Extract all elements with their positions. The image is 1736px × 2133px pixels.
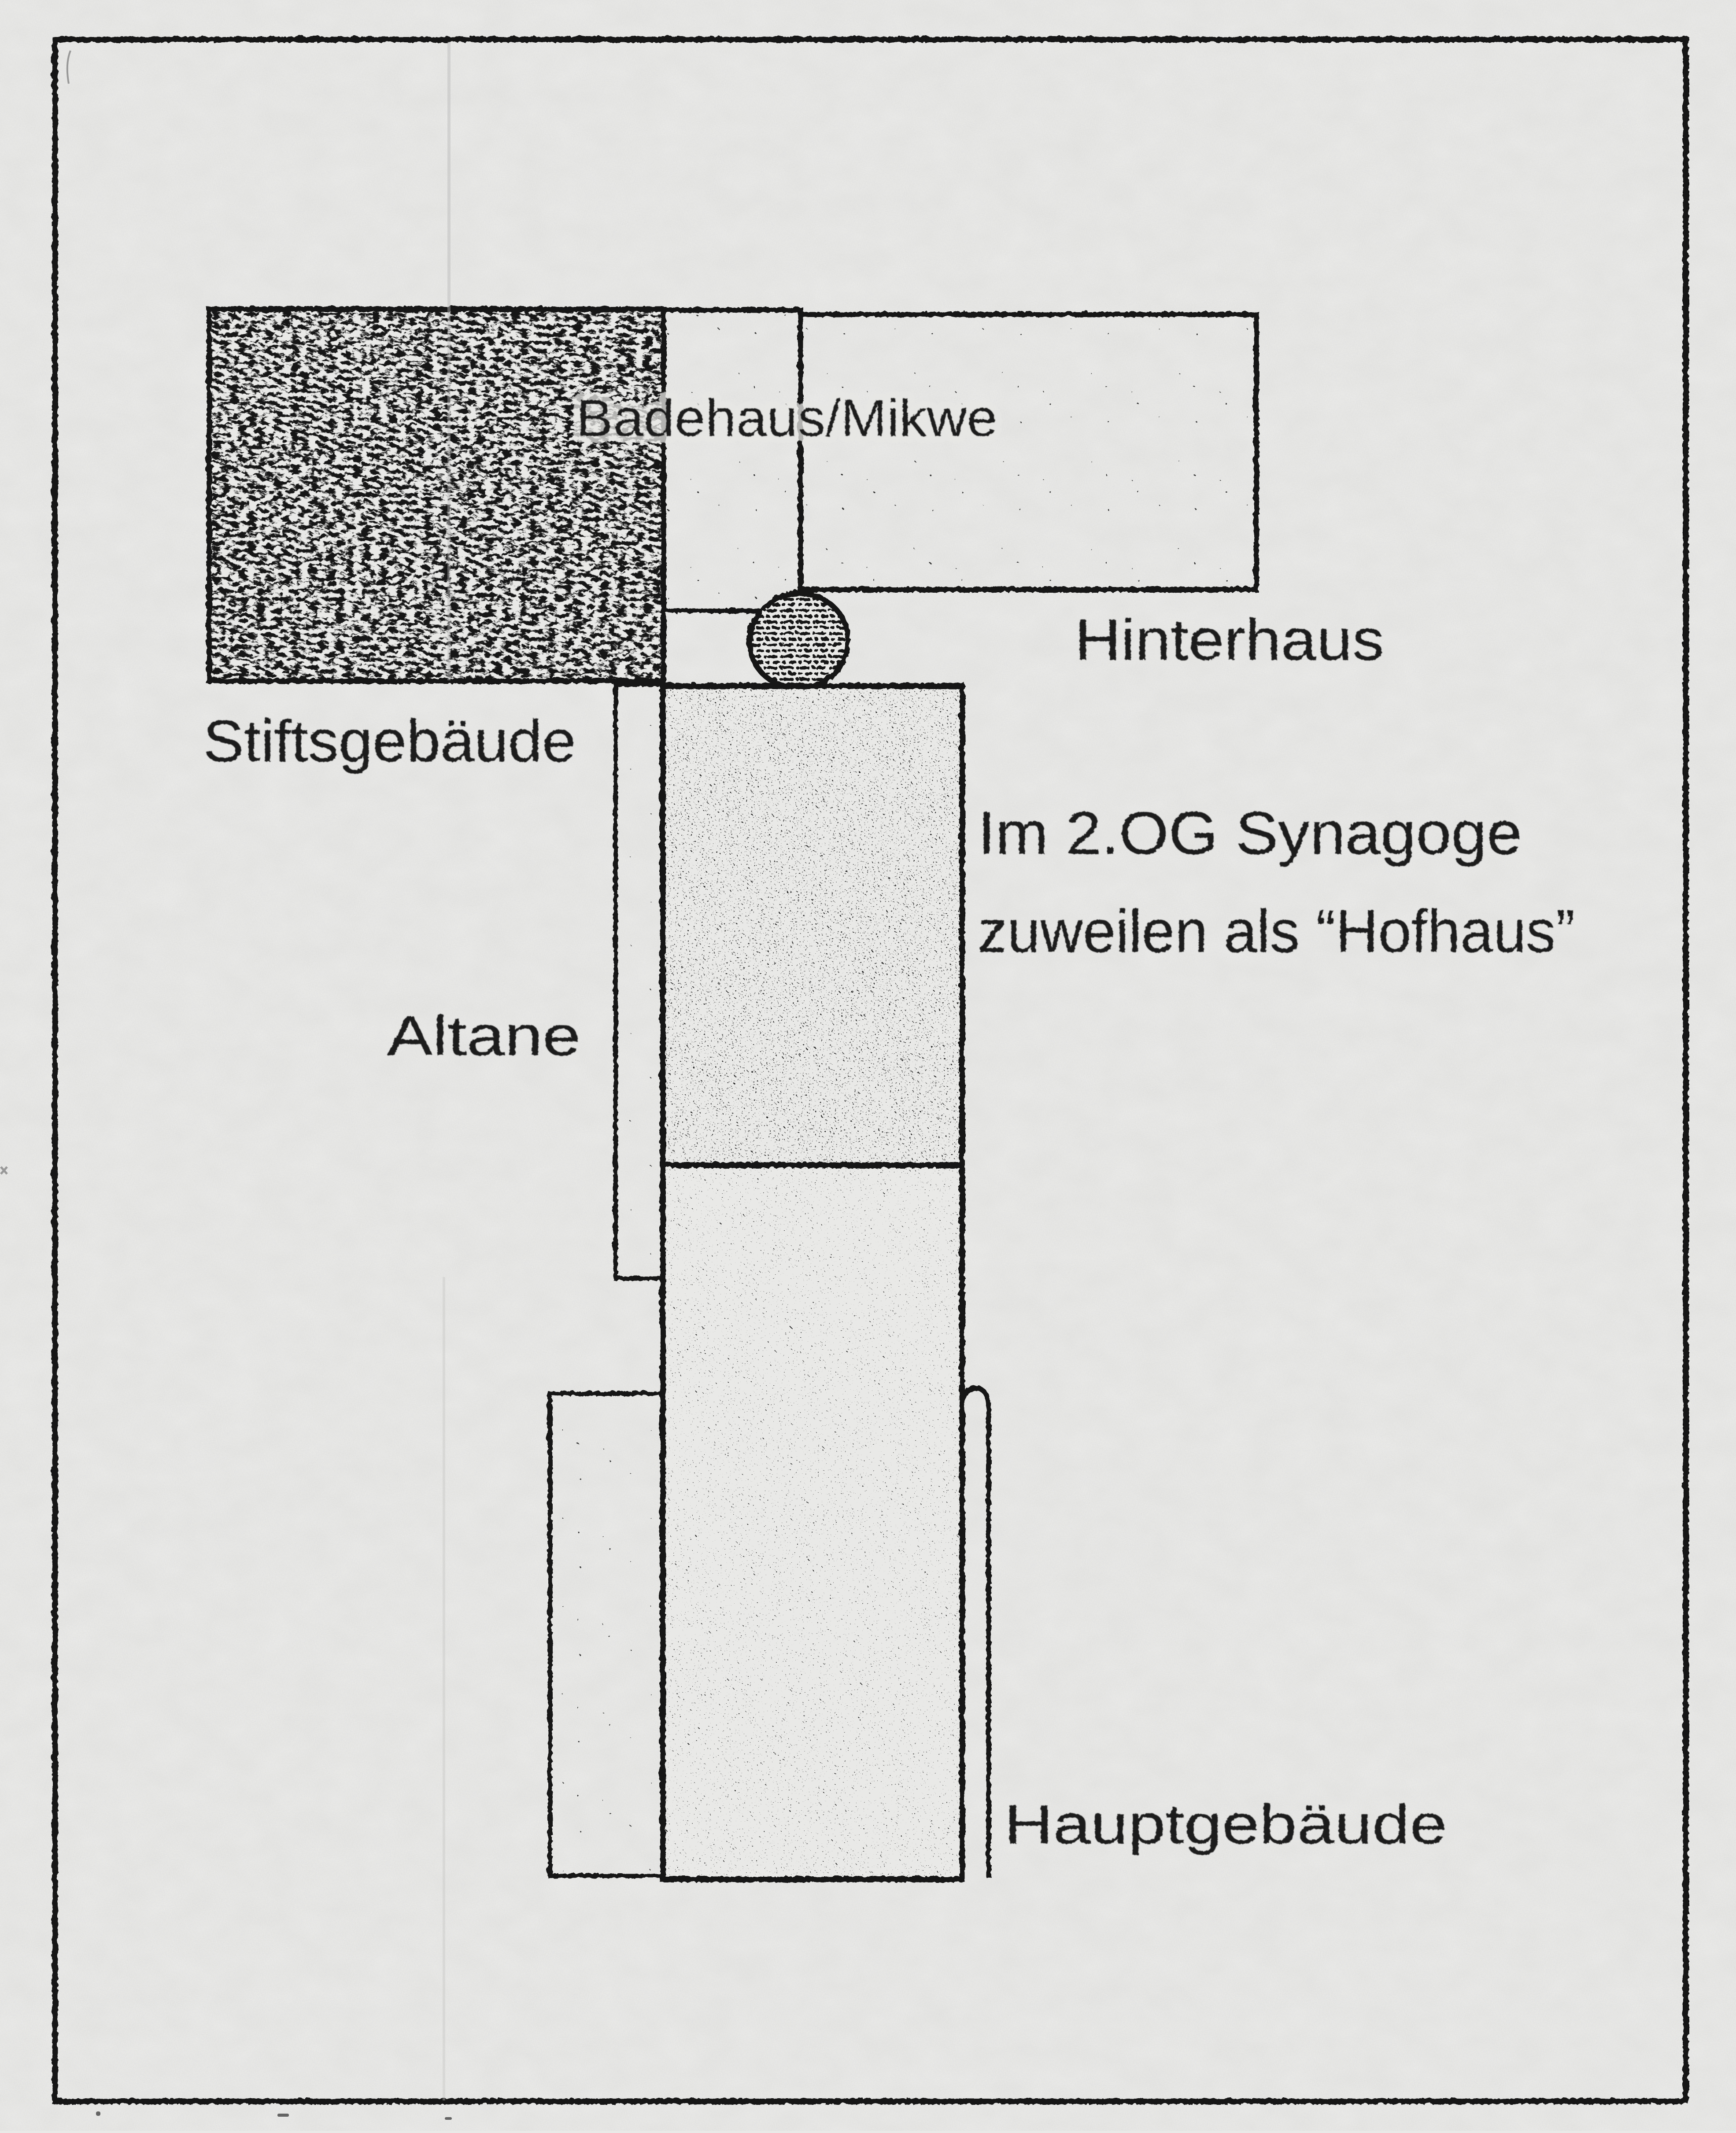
svg-text:Altane: Altane: [387, 1004, 580, 1067]
svg-text:Badehaus/Mikwe: Badehaus/Mikwe: [576, 388, 997, 447]
svg-text:Stiftsgebäude: Stiftsgebäude: [203, 707, 576, 774]
svg-text:Hauptgebäude: Hauptgebäude: [1004, 1793, 1447, 1855]
svg-text:Hinterhaus: Hinterhaus: [1074, 607, 1384, 672]
svg-text:zuweilen als “Hofhaus”: zuweilen als “Hofhaus”: [977, 897, 1575, 965]
svg-text:Im 2.OG Synagoge: Im 2.OG Synagoge: [977, 799, 1522, 867]
